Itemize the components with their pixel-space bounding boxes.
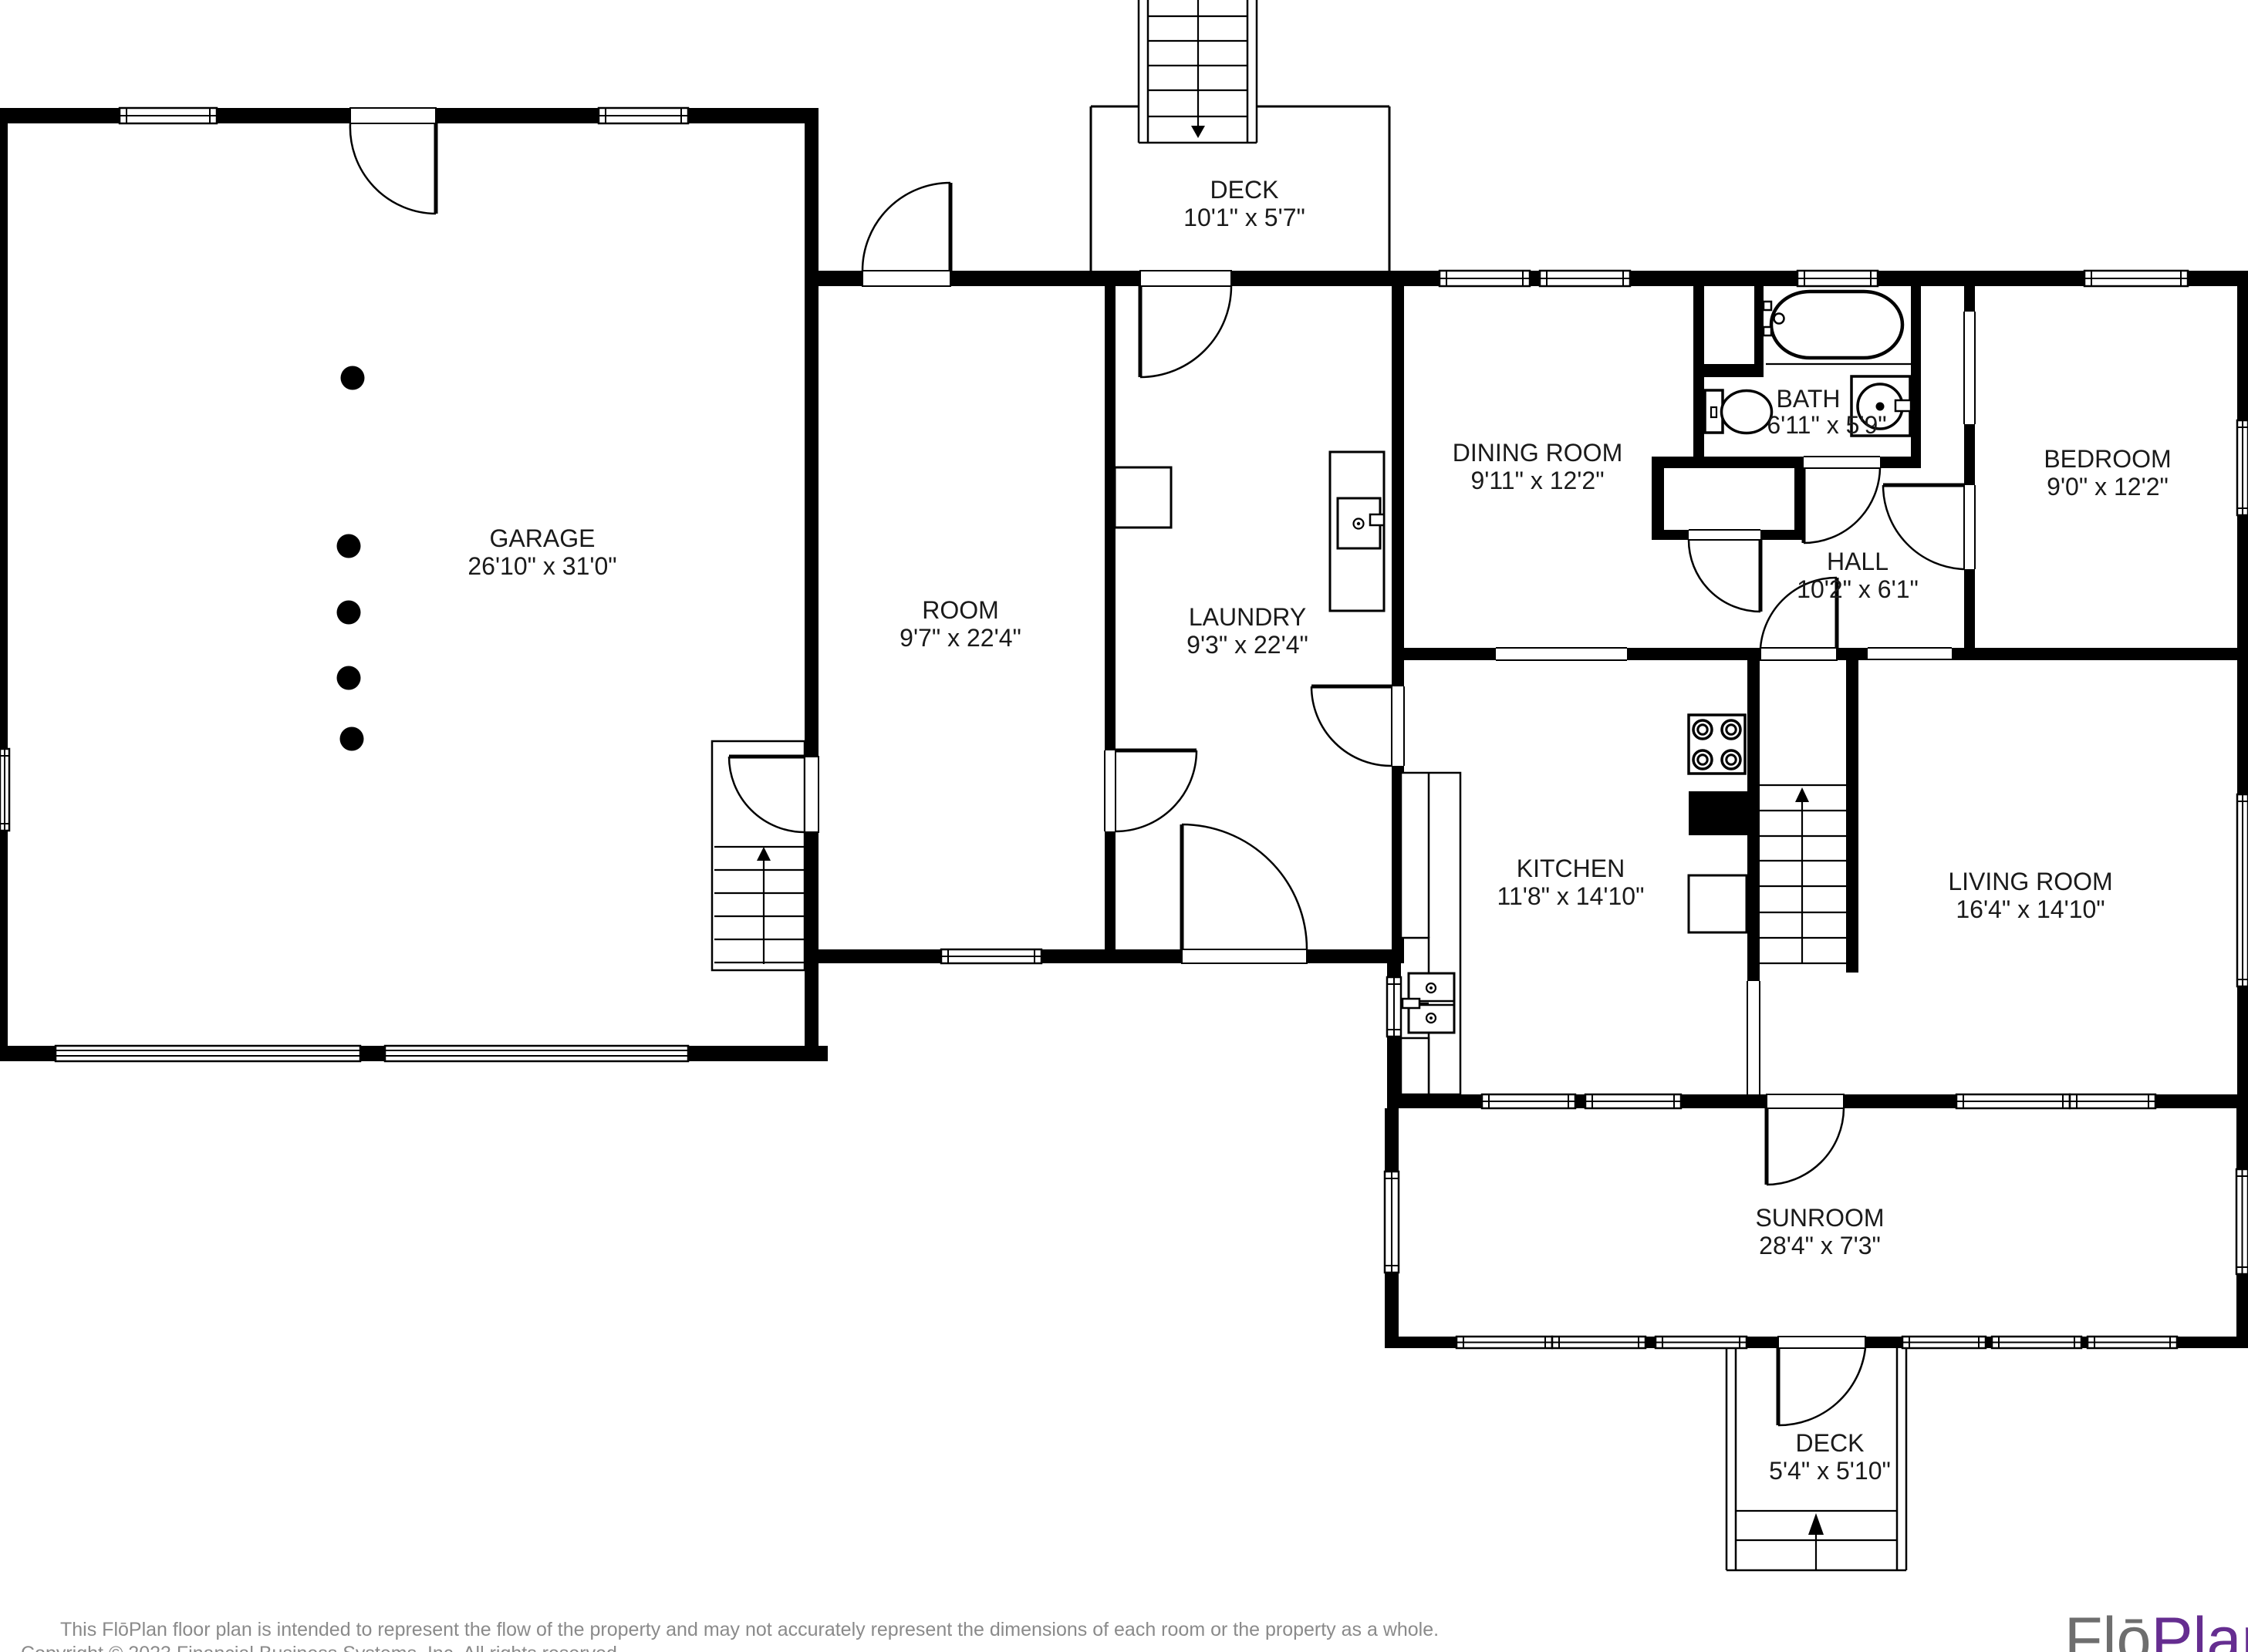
svg-text:GARAGE: GARAGE [490, 524, 596, 552]
svg-text:SUNROOM: SUNROOM [1755, 1204, 1884, 1232]
svg-text:6'11" x 5'9": 6'11" x 5'9" [1767, 411, 1886, 439]
svg-text:9'7" x 22'4": 9'7" x 22'4" [900, 624, 1021, 652]
svg-text:28'4" x 7'3": 28'4" x 7'3" [1759, 1232, 1881, 1259]
svg-text:5'4" x 5'10": 5'4" x 5'10" [1769, 1457, 1891, 1485]
svg-text:DECK: DECK [1796, 1429, 1865, 1457]
svg-text:10'1" x 5'7": 10'1" x 5'7" [1183, 204, 1305, 231]
svg-text:16'4" x 14'10": 16'4" x 14'10" [1956, 895, 2105, 923]
svg-text:9'3" x 22'4": 9'3" x 22'4" [1186, 631, 1308, 659]
svg-text:KITCHEN: KITCHEN [1517, 855, 1625, 882]
svg-text:9'11" x 12'2": 9'11" x 12'2" [1470, 467, 1604, 494]
svg-text:ROOM: ROOM [922, 596, 999, 624]
svg-text:LIVING ROOM: LIVING ROOM [1948, 868, 2112, 895]
svg-text:10'2" x 6'1": 10'2" x 6'1" [1797, 575, 1919, 603]
svg-text:LAUNDRY: LAUNDRY [1189, 603, 1306, 631]
svg-text:This FlōPlan floor plan is int: This FlōPlan floor plan is intended to r… [60, 1619, 1439, 1640]
svg-text:DECK: DECK [1210, 176, 1279, 204]
svg-text:FlōPlan: FlōPlan [2064, 1605, 2248, 1652]
svg-text:9'0" x 12'2": 9'0" x 12'2" [2047, 473, 2169, 501]
svg-text:11'8" x 14'10": 11'8" x 14'10" [1497, 882, 1645, 910]
svg-text:DINING ROOM: DINING ROOM [1453, 439, 1622, 467]
svg-text:Copyright © 2023 Financial Bus: Copyright © 2023 Financial Business Syst… [21, 1643, 623, 1652]
svg-text:26'10" x 31'0": 26'10" x 31'0" [467, 552, 616, 580]
svg-text:HALL: HALL [1827, 548, 1889, 575]
svg-text:BATH: BATH [1777, 385, 1841, 413]
svg-text:BEDROOM: BEDROOM [2044, 445, 2171, 473]
